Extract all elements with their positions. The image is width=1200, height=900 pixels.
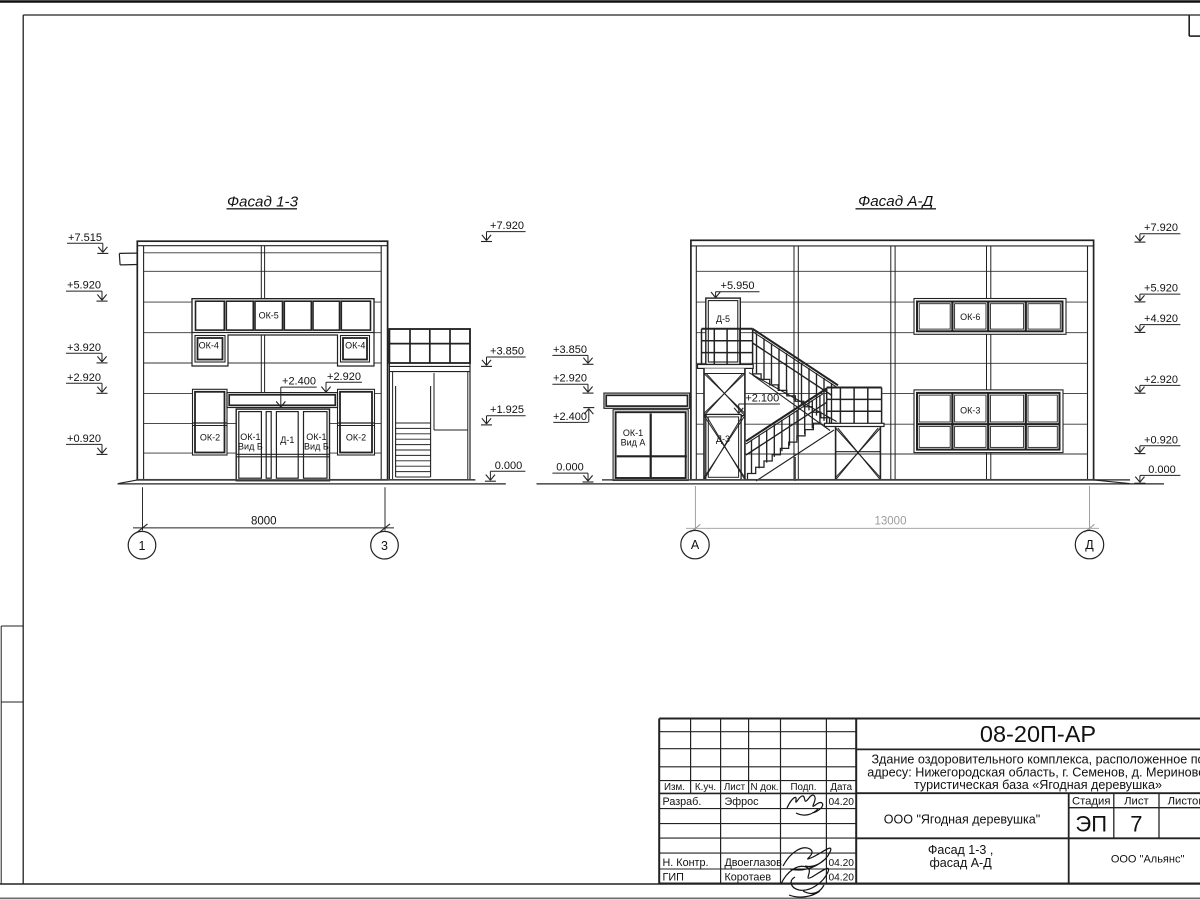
svg-text:Разраб.: Разраб. (663, 796, 702, 808)
svg-text:N док.: N док. (751, 782, 779, 793)
svg-text:0.000: 0.000 (556, 462, 584, 474)
svg-text:Дата: Дата (830, 782, 852, 793)
svg-text:Лист: Лист (1124, 796, 1149, 808)
svg-text:А: А (691, 538, 700, 552)
svg-text:+2.920: +2.920 (327, 371, 361, 383)
svg-text:+2.920: +2.920 (67, 372, 101, 384)
svg-text:0.000: 0.000 (495, 460, 523, 472)
svg-text:13000: 13000 (875, 516, 907, 528)
svg-text:Фасад 1-3: Фасад 1-3 (227, 193, 299, 210)
svg-text:ООО "Ягодная деревушка": ООО "Ягодная деревушка" (884, 813, 1040, 827)
svg-text:Вид А: Вид А (621, 437, 646, 447)
svg-text:7: 7 (1130, 812, 1142, 837)
svg-text:Подп.: Подп. (790, 782, 816, 793)
svg-text:Вид Б: Вид Б (304, 441, 329, 451)
svg-text:Эфрос: Эфрос (725, 796, 760, 808)
svg-text:ОК-6: ОК-6 (960, 312, 980, 322)
svg-text:+0.920: +0.920 (1144, 434, 1178, 446)
svg-text:+2.920: +2.920 (1144, 374, 1178, 386)
svg-text:Вид Б: Вид Б (238, 441, 263, 451)
svg-text:+5.920: +5.920 (67, 280, 101, 292)
svg-text:+1.925: +1.925 (490, 404, 524, 416)
svg-text:Фасад 1-3 ,: Фасад 1-3 , (928, 843, 993, 857)
svg-text:+3.920: +3.920 (67, 342, 101, 354)
svg-text:0.000: 0.000 (1148, 464, 1176, 476)
svg-text:+3.850: +3.850 (490, 346, 524, 358)
svg-text:3: 3 (381, 539, 388, 553)
svg-text:+7.920: +7.920 (490, 220, 524, 232)
svg-text:8000: 8000 (251, 516, 277, 528)
svg-text:Листов: Листов (1168, 796, 1200, 808)
svg-text:+2.400: +2.400 (282, 376, 316, 388)
svg-text:+5.920: +5.920 (1144, 283, 1178, 295)
svg-text:+5.950: +5.950 (721, 280, 755, 292)
svg-text:04.20: 04.20 (828, 797, 854, 808)
svg-text:Двоеглазов: Двоеглазов (725, 857, 783, 869)
svg-text:ГИП: ГИП (663, 872, 684, 884)
svg-text:Н. Контр.: Н. Контр. (663, 857, 709, 869)
svg-text:Д: Д (1085, 538, 1094, 552)
svg-text:Д-1: Д-1 (280, 435, 294, 445)
svg-text:ОК-4: ОК-4 (199, 341, 219, 351)
svg-text:+2.100: +2.100 (745, 393, 779, 405)
svg-text:+7.920: +7.920 (1144, 222, 1178, 234)
svg-text:Лист: Лист (724, 782, 746, 793)
svg-text:+3.850: +3.850 (553, 344, 587, 356)
svg-text:ОК-2: ОК-2 (346, 432, 366, 442)
svg-text:1: 1 (139, 539, 146, 553)
svg-text:ОК-5: ОК-5 (259, 311, 279, 321)
svg-text:+0.920: +0.920 (67, 433, 101, 445)
svg-text:ООО "Альянс": ООО "Альянс" (1111, 854, 1185, 866)
svg-text:04.20: 04.20 (828, 873, 854, 884)
svg-text:+2.400: +2.400 (553, 411, 587, 423)
svg-text:ОК-4: ОК-4 (345, 341, 365, 351)
svg-text:Коротаев: Коротаев (725, 872, 772, 884)
svg-text:ОК-3: ОК-3 (960, 405, 980, 415)
svg-text:туристическая база «Ягодная де: туристическая база «Ягодная деревушка» (914, 778, 1162, 792)
svg-text:+2.920: +2.920 (553, 373, 587, 385)
svg-text:Д-5: Д-5 (716, 314, 730, 324)
svg-text:ЭП: ЭП (1075, 812, 1107, 837)
svg-text:фасад А-Д: фасад А-Д (930, 856, 993, 870)
svg-text:+7.515: +7.515 (68, 232, 102, 244)
svg-text:Изм.: Изм. (664, 782, 685, 793)
svg-text:+4.920: +4.920 (1144, 313, 1178, 325)
svg-text:К.уч.: К.уч. (695, 782, 716, 793)
svg-text:Фасад А-Д: Фасад А-Д (858, 193, 933, 210)
svg-text:ОК-2: ОК-2 (200, 432, 220, 442)
svg-text:Стадия: Стадия (1072, 796, 1111, 808)
svg-text:08-20П-АР: 08-20П-АР (980, 721, 1096, 747)
svg-text:04.20: 04.20 (828, 858, 854, 869)
svg-text:Здание оздоровительного компле: Здание оздоровительного комплекса, распо… (871, 753, 1200, 767)
